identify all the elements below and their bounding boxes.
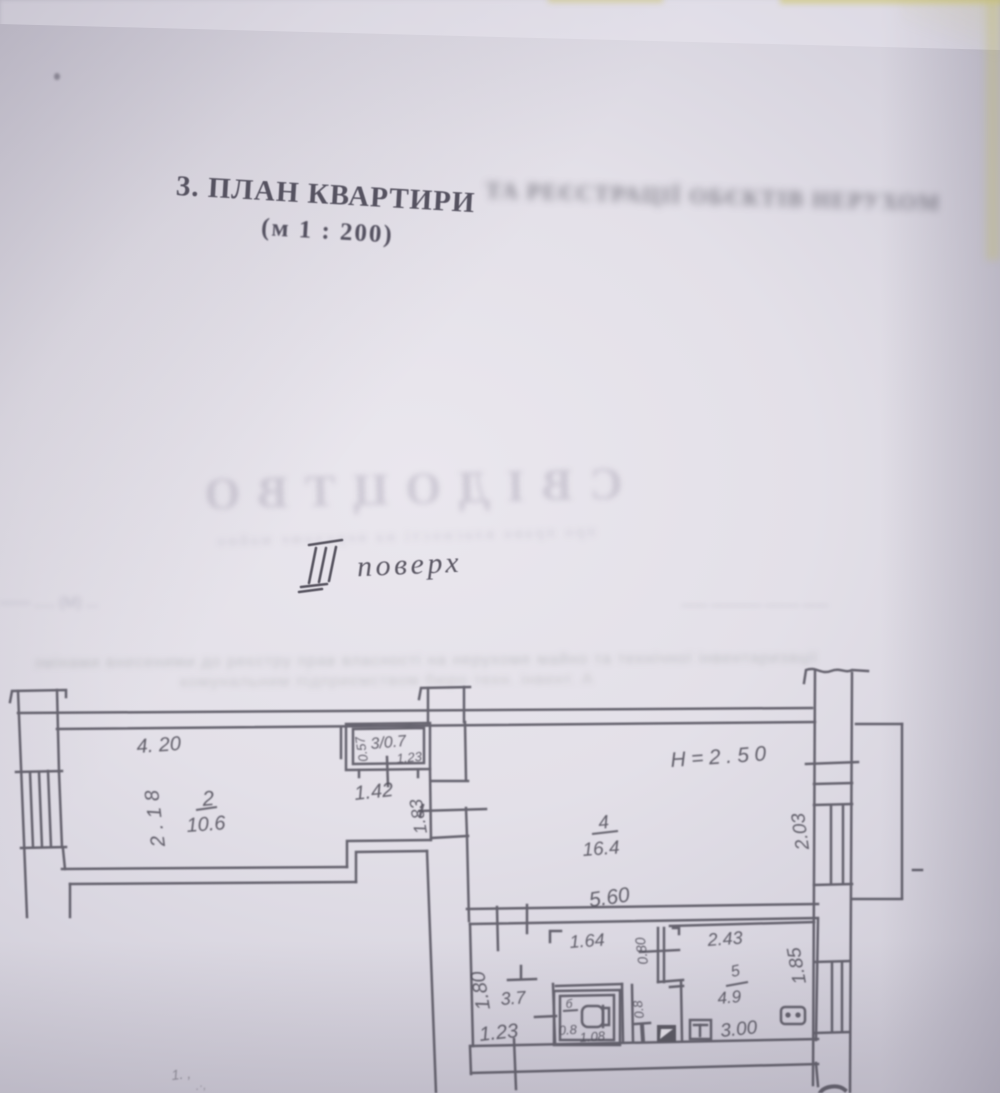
svg-text:0.8: 0.8 (630, 999, 647, 1020)
svg-text:4.9: 4.9 (717, 987, 743, 1008)
svg-text:0.80: 0.80 (632, 936, 651, 965)
svg-text:1.08: 1.08 (579, 1028, 606, 1045)
svg-text:16.4: 16.4 (582, 837, 620, 861)
svg-text:2.03: 2.03 (788, 811, 814, 852)
svg-text:2.18: 2.18 (140, 783, 170, 849)
svg-text:1.83: 1.83 (406, 798, 431, 836)
svg-text:4. 20: 4. 20 (136, 733, 182, 758)
svg-text:3.7: 3.7 (500, 987, 527, 1009)
svg-text:4: 4 (597, 812, 610, 834)
svg-text:1.64: 1.64 (569, 930, 605, 952)
svg-text:5: 5 (729, 962, 741, 980)
svg-text:1.42: 1.42 (353, 779, 394, 805)
svg-text:1.23: 1.23 (478, 1020, 519, 1046)
svg-text:б: б (565, 996, 574, 1011)
svg-text:2.43: 2.43 (706, 928, 743, 950)
svg-text:1.80: 1.80 (467, 970, 495, 1012)
svg-text:3.00: 3.00 (719, 1017, 758, 1042)
svg-text:0.8: 0.8 (558, 1022, 578, 1038)
svg-text:.·,: .·, (195, 1078, 207, 1093)
svg-text:1. ,: 1. , (171, 1065, 192, 1083)
svg-text:1.85: 1.85 (784, 945, 811, 985)
svg-text:1.23: 1.23 (396, 749, 423, 766)
svg-text:Н=2.50: Н=2.50 (670, 742, 773, 772)
svg-text:0.57: 0.57 (352, 735, 371, 763)
svg-text:10.6: 10.6 (186, 812, 227, 837)
